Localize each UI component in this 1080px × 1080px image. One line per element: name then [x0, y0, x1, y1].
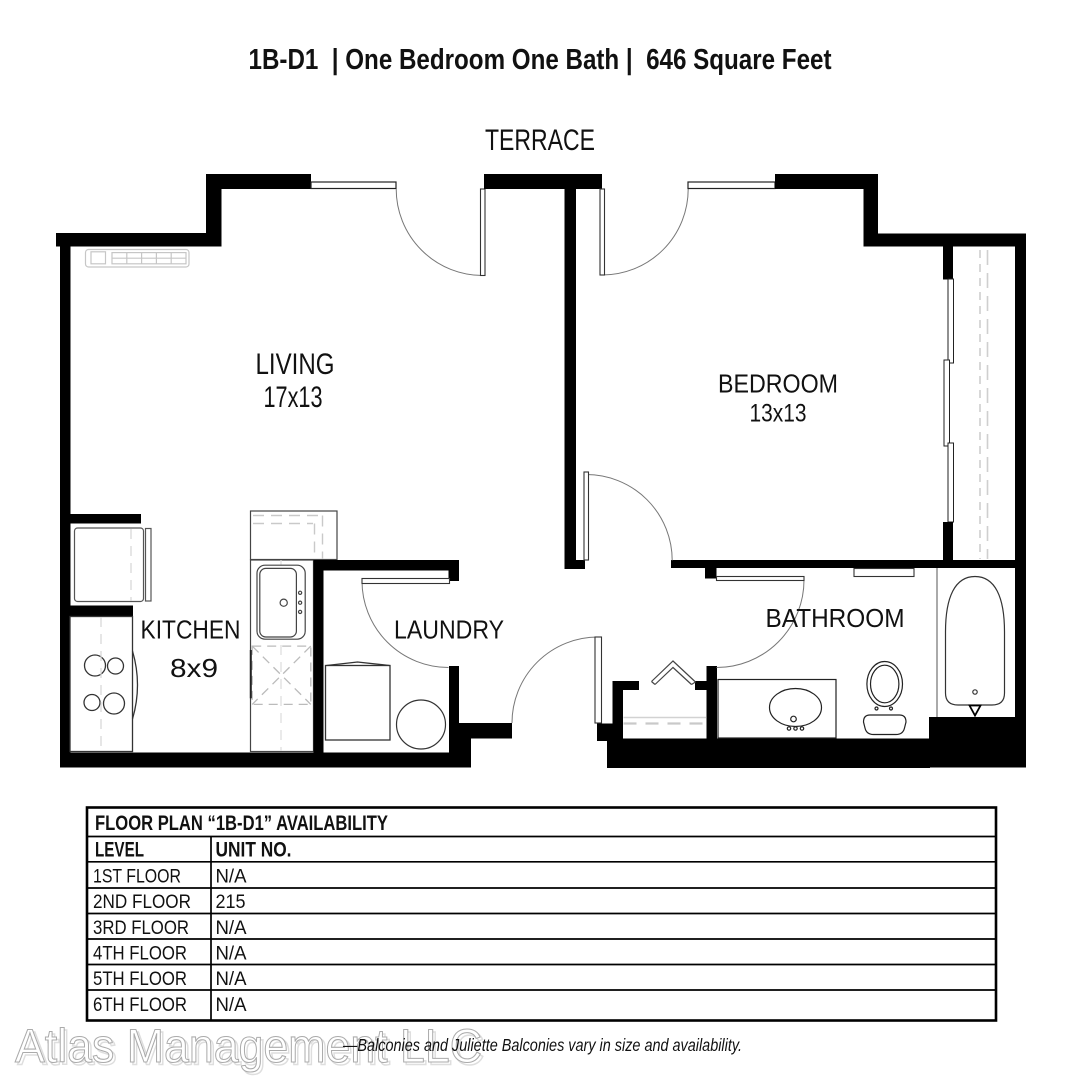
- svg-text:N/A: N/A: [216, 942, 247, 964]
- svg-text:LEVEL: LEVEL: [95, 839, 144, 862]
- svg-text:TERRACE: TERRACE: [485, 124, 595, 157]
- svg-text:N/A: N/A: [216, 917, 247, 939]
- svg-text:4TH FLOOR: 4TH FLOOR: [93, 942, 187, 964]
- svg-text:N/A: N/A: [216, 994, 247, 1016]
- svg-text:UNIT NO.: UNIT NO.: [216, 839, 292, 862]
- svg-text:3RD FLOOR: 3RD FLOOR: [93, 917, 189, 939]
- svg-text:6TH FLOOR: 6TH FLOOR: [93, 994, 187, 1016]
- svg-text:N/A: N/A: [216, 968, 247, 990]
- svg-text:2ND FLOOR: 2ND FLOOR: [93, 891, 191, 913]
- svg-text:—Balconies and Juliette Balcon: —Balconies and Juliette Balconies vary i…: [342, 1035, 742, 1055]
- svg-text:BATHROOM: BATHROOM: [766, 603, 905, 633]
- svg-text:LAUNDRY: LAUNDRY: [394, 615, 504, 645]
- svg-text:1B-D1 | One Bedroom One Bath: 1B-D1 | One Bedroom One Bath | 646 Squar…: [249, 44, 832, 76]
- svg-text:N/A: N/A: [216, 866, 247, 888]
- svg-text:17x13: 17x13: [264, 381, 323, 414]
- svg-text:FLOOR PLAN “1B-D1” AVAILABILIT: FLOOR PLAN “1B-D1” AVAILABILITY: [95, 812, 388, 835]
- svg-text:KITCHEN: KITCHEN: [141, 615, 241, 645]
- svg-text:215: 215: [216, 891, 246, 913]
- svg-text:8x9: 8x9: [170, 653, 218, 683]
- svg-text:5TH FLOOR: 5TH FLOOR: [93, 968, 187, 990]
- svg-text:LIVING: LIVING: [256, 348, 335, 381]
- svg-text:1ST FLOOR: 1ST FLOOR: [93, 866, 181, 888]
- svg-text:BEDROOM: BEDROOM: [718, 369, 838, 399]
- svg-text:13x13: 13x13: [750, 400, 807, 428]
